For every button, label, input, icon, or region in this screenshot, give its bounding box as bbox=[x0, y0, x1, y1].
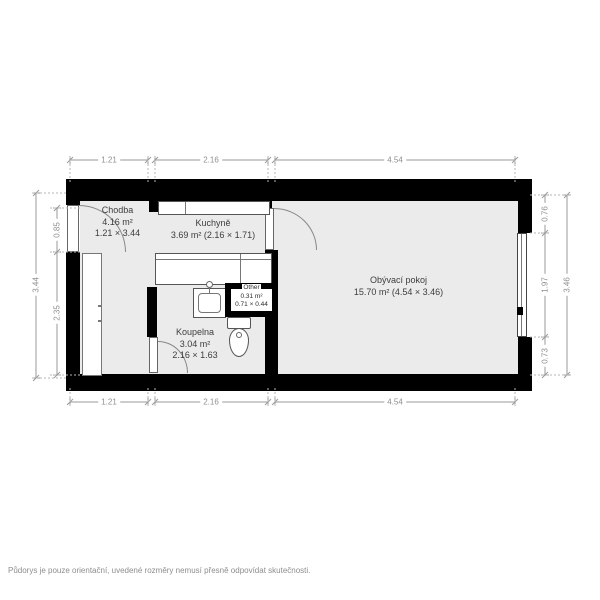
dim-bottom-chodba: 1.21 bbox=[98, 398, 120, 407]
dimension-lines bbox=[0, 0, 600, 600]
dim-left-inner-top: 0.85 bbox=[53, 219, 62, 241]
dim-right-inner-top: 0.76 bbox=[541, 203, 550, 225]
disclaimer-text: Půdorys je pouze orientační, uvedené roz… bbox=[8, 566, 310, 575]
dim-left-inner-bottom: 2.35 bbox=[53, 302, 62, 324]
dim-right-outer: 3.46 bbox=[563, 274, 572, 296]
dim-top-chodba: 1.21 bbox=[98, 156, 120, 165]
dim-left-outer: 3.44 bbox=[32, 274, 41, 296]
dim-bottom-obyvaci: 4.54 bbox=[384, 398, 406, 407]
dim-bottom-kuchyne: 2.16 bbox=[200, 398, 222, 407]
dim-top-obyvaci: 4.54 bbox=[384, 156, 406, 165]
floor-plan: Chodba 4.16 m² 1.21 × 3.44 Kuchyně 3.69 … bbox=[0, 0, 600, 600]
dim-top-kuchyne: 2.16 bbox=[200, 156, 222, 165]
dim-right-inner-bottom: 0.73 bbox=[541, 345, 550, 367]
dim-right-inner-middle: 1.97 bbox=[541, 274, 550, 296]
